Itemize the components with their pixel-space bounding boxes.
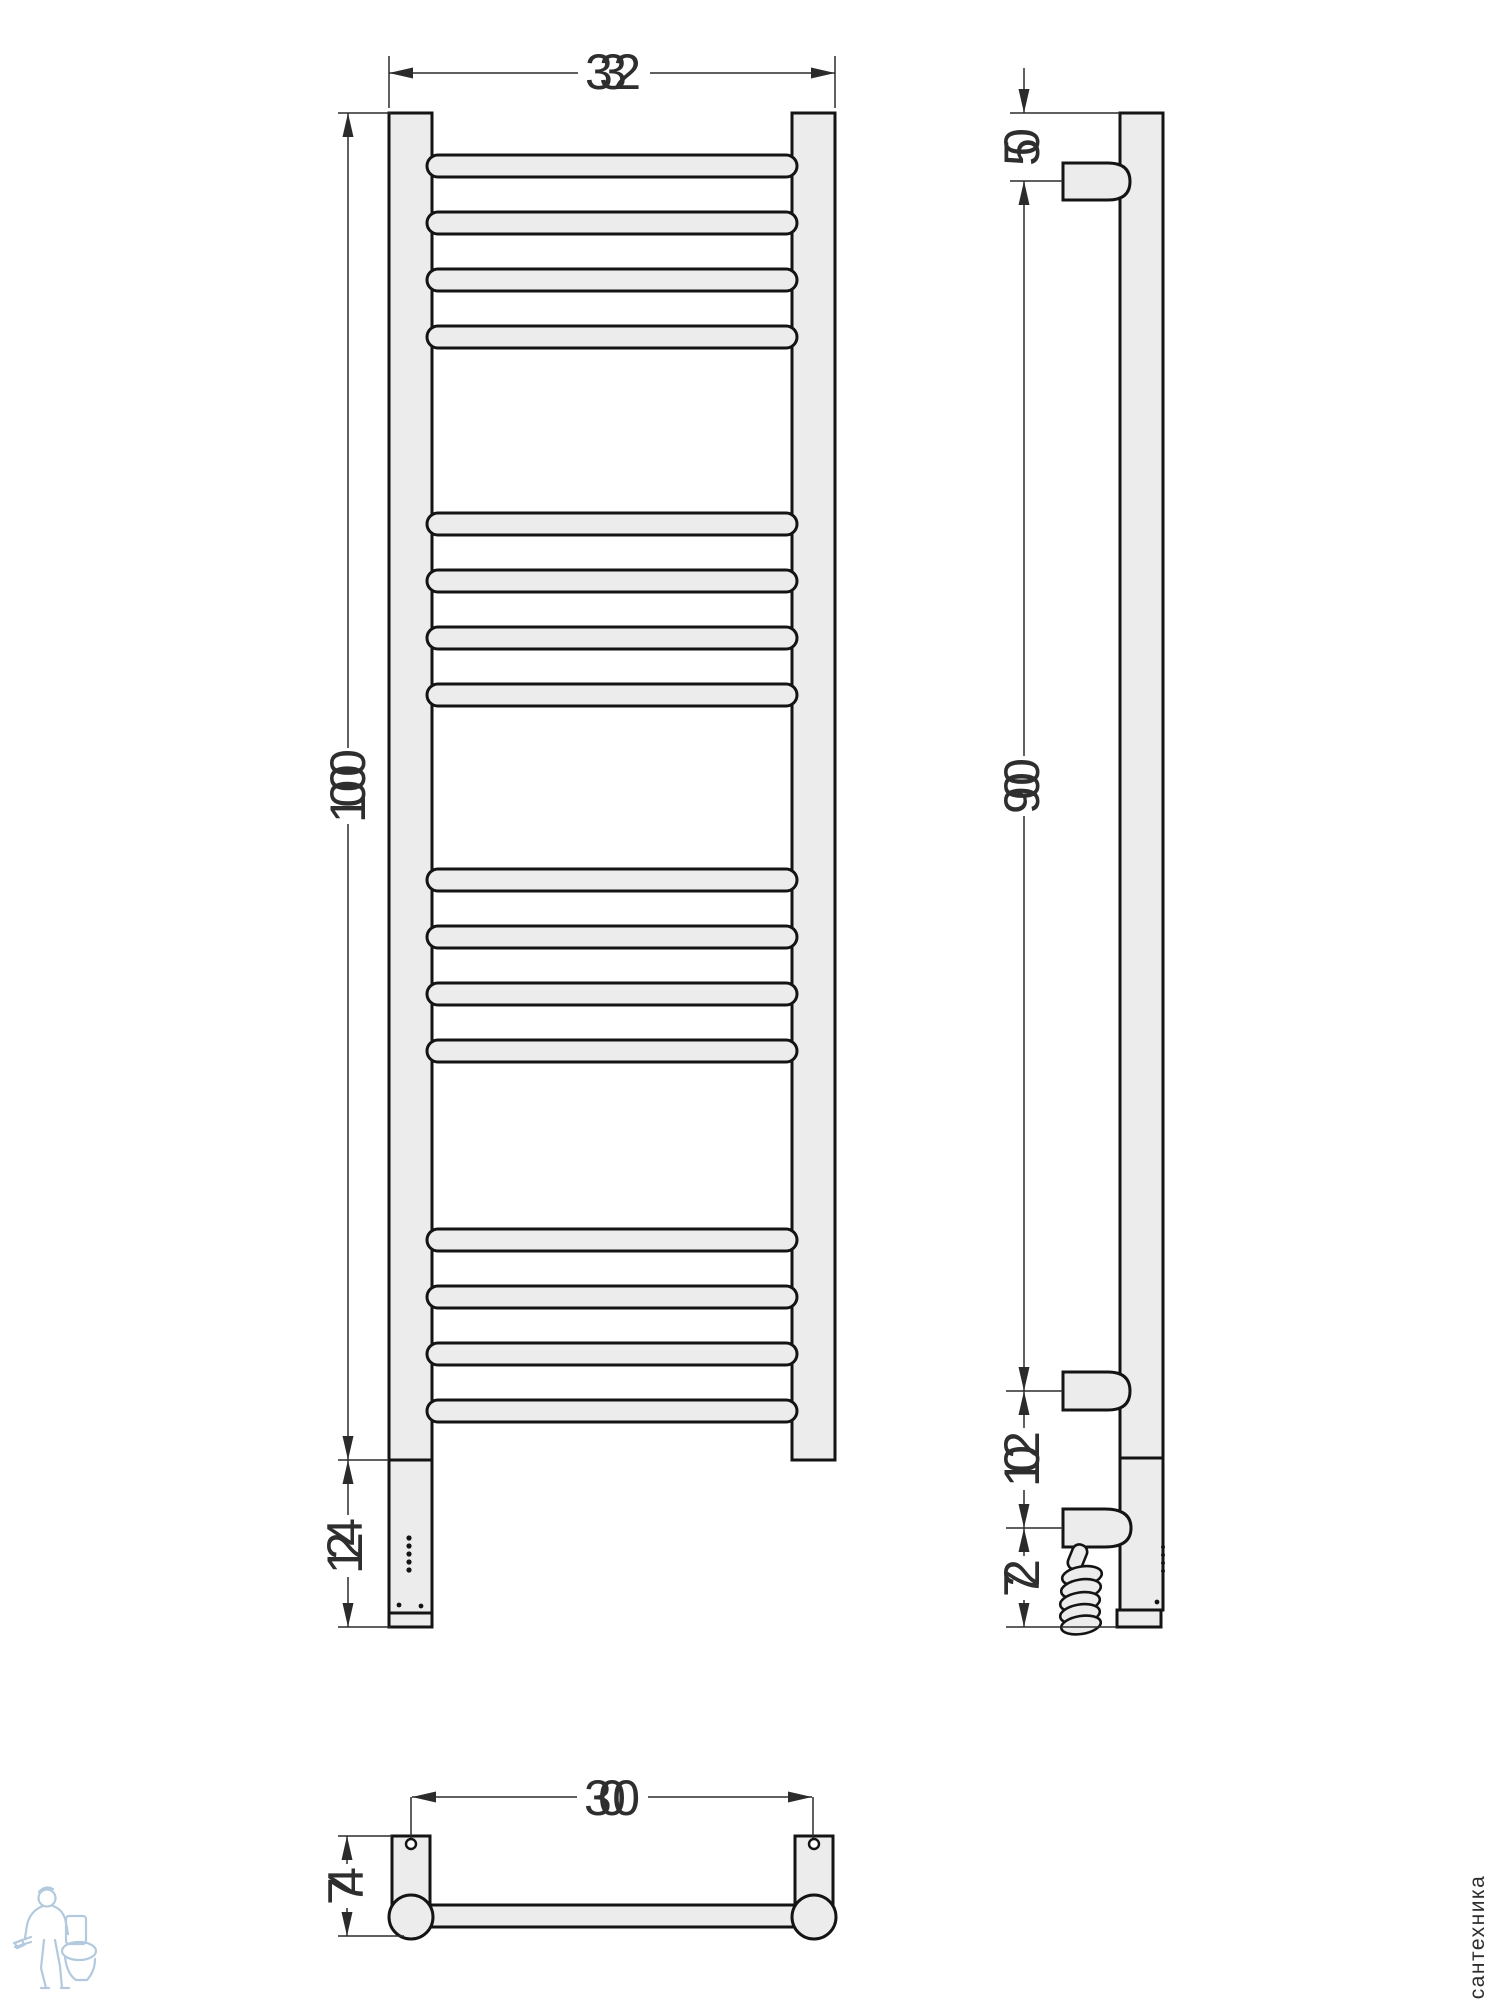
bottom-view (389, 1836, 836, 1939)
dim-front-width: 332 (585, 44, 641, 100)
side-view (1059, 113, 1165, 1637)
front-view (389, 113, 835, 1627)
plumber-logo (14, 1888, 96, 1988)
site-watermark-text: сантехника (1466, 1875, 1489, 2000)
side-top-bracket (1063, 163, 1130, 200)
electric-box (1063, 1509, 1131, 1547)
dim-side-socket-to-bottom: 72 (994, 1559, 1050, 1597)
dim-side-bracket-span: 900 (994, 758, 1050, 814)
bottom-left-hole (406, 1839, 416, 1849)
front-rungs (427, 155, 797, 1422)
dim-heater-section: 124 (317, 1518, 373, 1574)
spiral-cable (1059, 1542, 1103, 1637)
dim-bottom-depth: 74 (318, 1867, 374, 1905)
dim-side-top-offset: 50 (994, 128, 1050, 166)
technical-drawing-page: 332 1000 124 50 900 102 72 300 74 сантех… (0, 0, 1500, 2000)
front-left-rail (389, 113, 432, 1627)
dim-side-bracket-to-socket: 102 (994, 1431, 1050, 1487)
towel-rail-drawing: 332 1000 124 50 900 102 72 300 74 сантех… (0, 0, 1500, 2000)
bottom-right-post (792, 1895, 836, 1939)
bottom-left-post (389, 1895, 433, 1939)
front-right-rail (792, 113, 835, 1460)
side-bottom-bracket (1063, 1372, 1130, 1410)
dim-front-height: 1000 (320, 749, 376, 823)
dim-bottom-mount-width: 300 (584, 1770, 640, 1826)
bottom-bar (410, 1905, 814, 1927)
bottom-right-hole (809, 1839, 819, 1849)
side-foot (1117, 1610, 1161, 1627)
